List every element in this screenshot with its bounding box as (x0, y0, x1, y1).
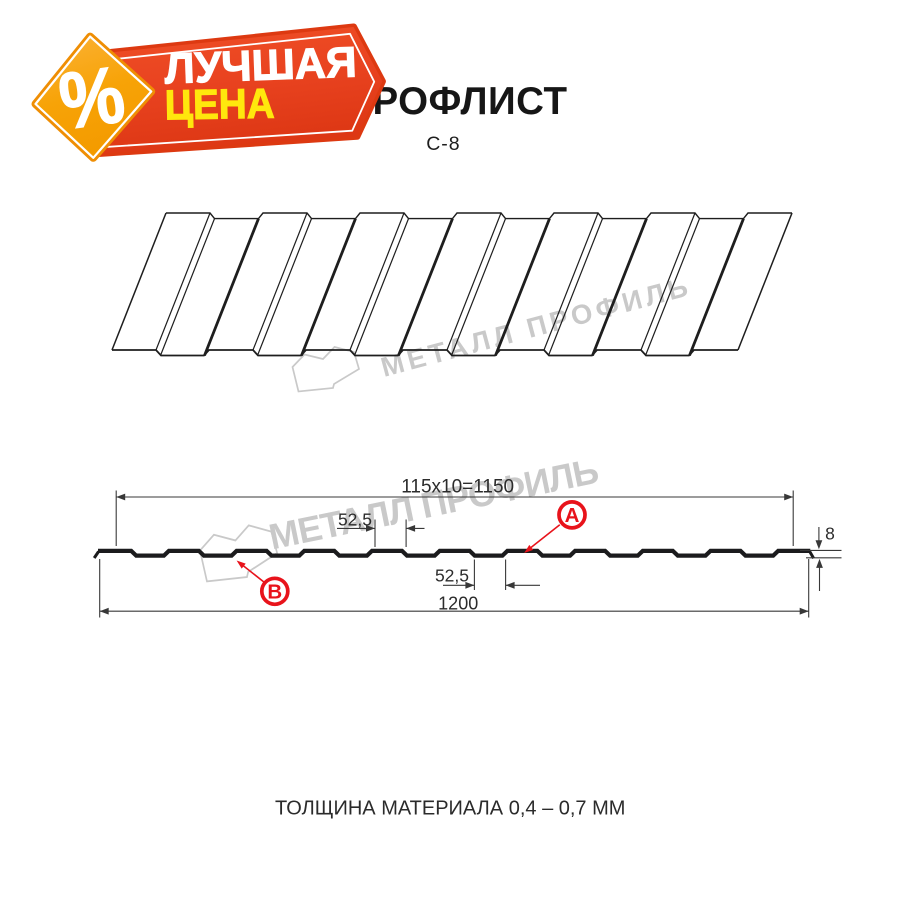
svg-text:115x10=1150: 115x10=1150 (401, 477, 514, 498)
svg-text:52,5: 52,5 (338, 510, 372, 530)
svg-text:B: B (267, 581, 282, 604)
svg-text:С-8: С-8 (426, 133, 460, 155)
svg-text:ТОЛЩИНА МАТЕРИАЛА 0,4 – 0,7 ММ: ТОЛЩИНА МАТЕРИАЛА 0,4 – 0,7 ММ (275, 798, 625, 820)
svg-text:8: 8 (825, 524, 835, 544)
svg-text:52,5: 52,5 (435, 565, 469, 585)
svg-text:1200: 1200 (438, 594, 478, 614)
svg-text:A: A (565, 504, 580, 527)
svg-text:ЦЕНА: ЦЕНА (164, 79, 275, 129)
svg-text:%: % (54, 50, 130, 147)
